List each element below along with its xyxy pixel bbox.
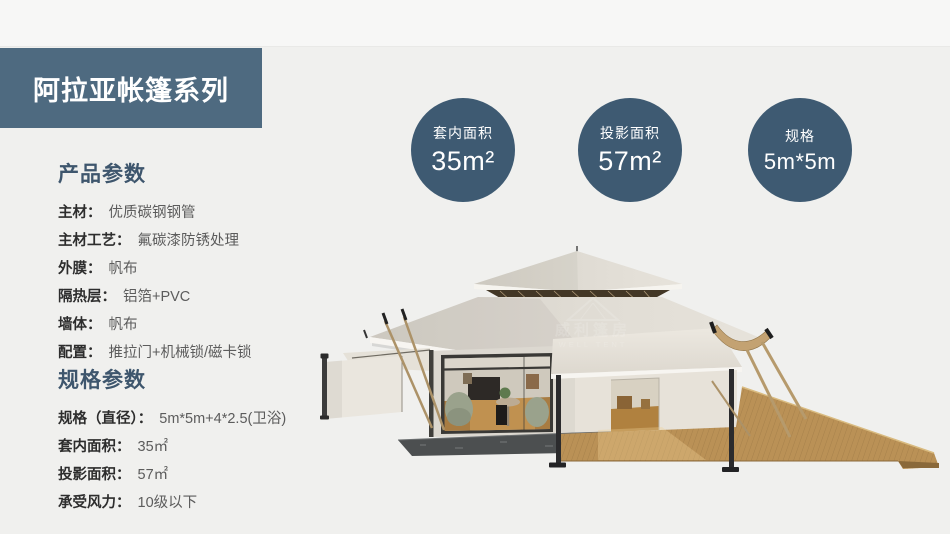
stat-circle-size: 规格 5m*5m	[748, 98, 852, 202]
param-row-outer-membrane: 外膜： 帆布	[58, 253, 252, 281]
param-row-material-craft: 主材工艺： 氟碳漆防锈处理	[58, 225, 252, 253]
product-params-heading: 产品参数	[58, 158, 252, 188]
tent-left-wing	[320, 348, 433, 420]
param-label: 套内面积：	[58, 435, 131, 456]
param-value: 优质碳钢钢管	[109, 201, 196, 222]
param-label: 规格（直径）：	[58, 407, 152, 428]
param-value: 35㎡	[138, 435, 169, 456]
spec-row-indoor-area: 套内面积： 35㎡	[58, 431, 286, 459]
param-row-insulation: 隔热层： 铝箔+PVC	[58, 281, 252, 309]
awning-pole	[729, 369, 734, 468]
param-label: 投影面积：	[58, 463, 131, 484]
stat-value: 5m*5m	[764, 149, 836, 175]
stat-label: 套内面积	[433, 123, 493, 143]
param-label: 配置：	[58, 341, 102, 362]
param-value: 5m*5m+4*2.5(卫浴)	[159, 407, 286, 428]
param-label: 墙体：	[58, 313, 102, 334]
stat-value: 35m²	[431, 146, 495, 177]
interior-piano	[468, 377, 500, 400]
interior-plant	[500, 388, 511, 399]
tent-top-roof	[474, 246, 682, 303]
spec-params-heading: 规格参数	[58, 364, 286, 394]
stat-circle-indoor-area: 套内面积 35m²	[411, 98, 515, 202]
param-label: 隔热层：	[58, 285, 116, 306]
stat-value: 57m²	[598, 146, 662, 177]
product-sheet: 阿拉亚帐篷系列 产品参数 主材： 优质碳钢钢管 主材工艺： 氟碳漆防锈处理 外膜…	[0, 0, 950, 534]
product-params-section: 产品参数 主材： 优质碳钢钢管 主材工艺： 氟碳漆防锈处理 外膜： 帆布 隔热层…	[58, 158, 252, 365]
spec-params-section: 规格参数 规格（直径）： 5m*5m+4*2.5(卫浴) 套内面积： 35㎡ 投…	[58, 364, 286, 515]
param-label: 主材工艺：	[58, 229, 131, 250]
spec-row-size: 规格（直径）： 5m*5m+4*2.5(卫浴)	[58, 403, 286, 431]
spec-row-wind-resistance: 承受风力： 10级以下	[58, 487, 286, 515]
param-label: 主材：	[58, 201, 102, 222]
param-value: 帆布	[109, 313, 138, 334]
param-row-wall: 墙体： 帆布	[58, 309, 252, 337]
param-label: 外膜：	[58, 257, 102, 278]
interior-armchair	[525, 397, 549, 427]
param-value: 帆布	[109, 257, 138, 278]
tent-photo: 威利篷房 WELL TENT	[318, 243, 948, 509]
param-row-configuration: 配置： 推拉门+机械锁/磁卡锁	[58, 337, 252, 365]
param-row-material: 主材： 优质碳钢钢管	[58, 197, 252, 225]
stat-label: 投影面积	[600, 123, 660, 143]
param-value: 推拉门+机械锁/磁卡锁	[109, 341, 252, 362]
top-strip	[0, 0, 950, 47]
spec-row-projection-area: 投影面积： 57㎡	[58, 459, 286, 487]
param-value: 57㎡	[138, 463, 169, 484]
param-value: 10级以下	[138, 491, 198, 512]
param-value: 氟碳漆防锈处理	[138, 229, 240, 250]
param-value: 铝箔+PVC	[123, 285, 190, 306]
stat-label: 规格	[785, 126, 815, 146]
awning-pole	[556, 375, 561, 463]
stat-circle-projection-area: 投影面积 57m²	[578, 98, 682, 202]
watermark-cn: 威利篷房	[555, 321, 631, 339]
series-title-banner: 阿拉亚帐篷系列	[0, 48, 262, 128]
param-label: 承受风力：	[58, 491, 131, 512]
watermark-en: WELL TENT	[559, 340, 628, 349]
series-title: 阿拉亚帐篷系列	[33, 69, 229, 108]
